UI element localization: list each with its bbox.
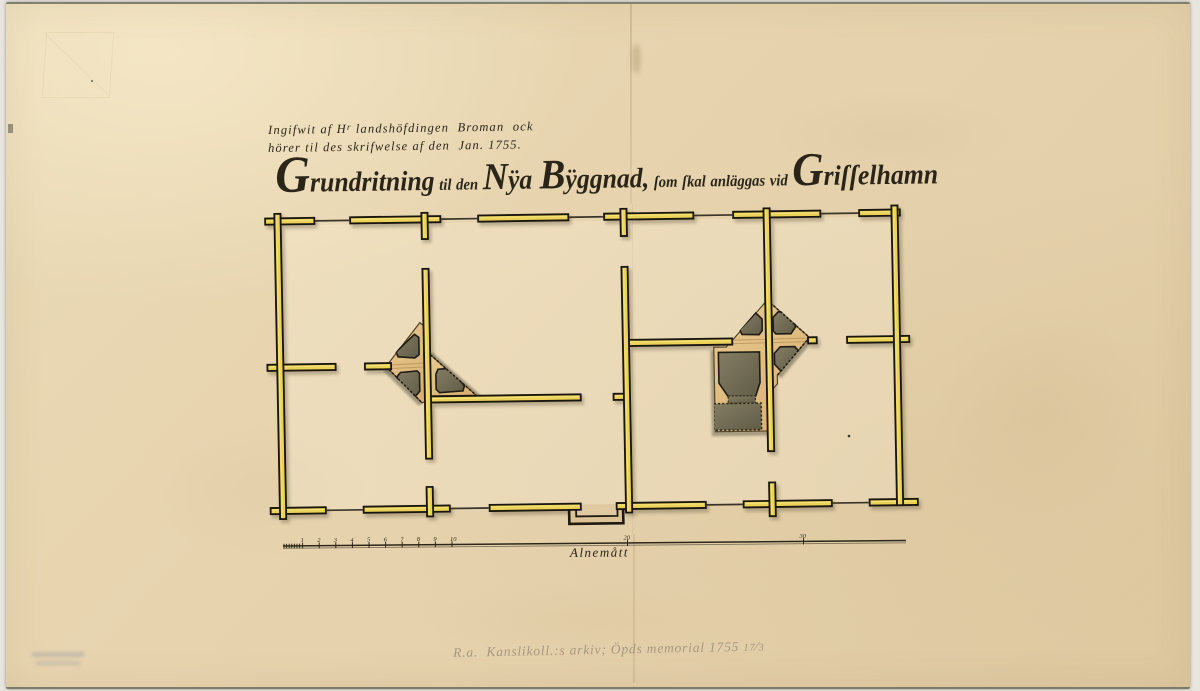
svg-text:7: 7 bbox=[400, 536, 404, 543]
svg-text:4: 4 bbox=[350, 537, 354, 544]
svg-text:20: 20 bbox=[624, 534, 631, 541]
svg-text:10: 10 bbox=[450, 536, 457, 543]
svg-text:Alnemått: Alnemått bbox=[569, 544, 629, 560]
svg-text:6: 6 bbox=[384, 537, 388, 544]
svg-text:3: 3 bbox=[333, 537, 338, 544]
svg-text:5: 5 bbox=[367, 537, 371, 544]
svg-text:8: 8 bbox=[417, 536, 421, 543]
svg-text:1: 1 bbox=[301, 537, 304, 544]
svg-text:9: 9 bbox=[433, 536, 437, 543]
svg-text:30: 30 bbox=[799, 533, 807, 540]
svg-text:2: 2 bbox=[317, 537, 321, 544]
